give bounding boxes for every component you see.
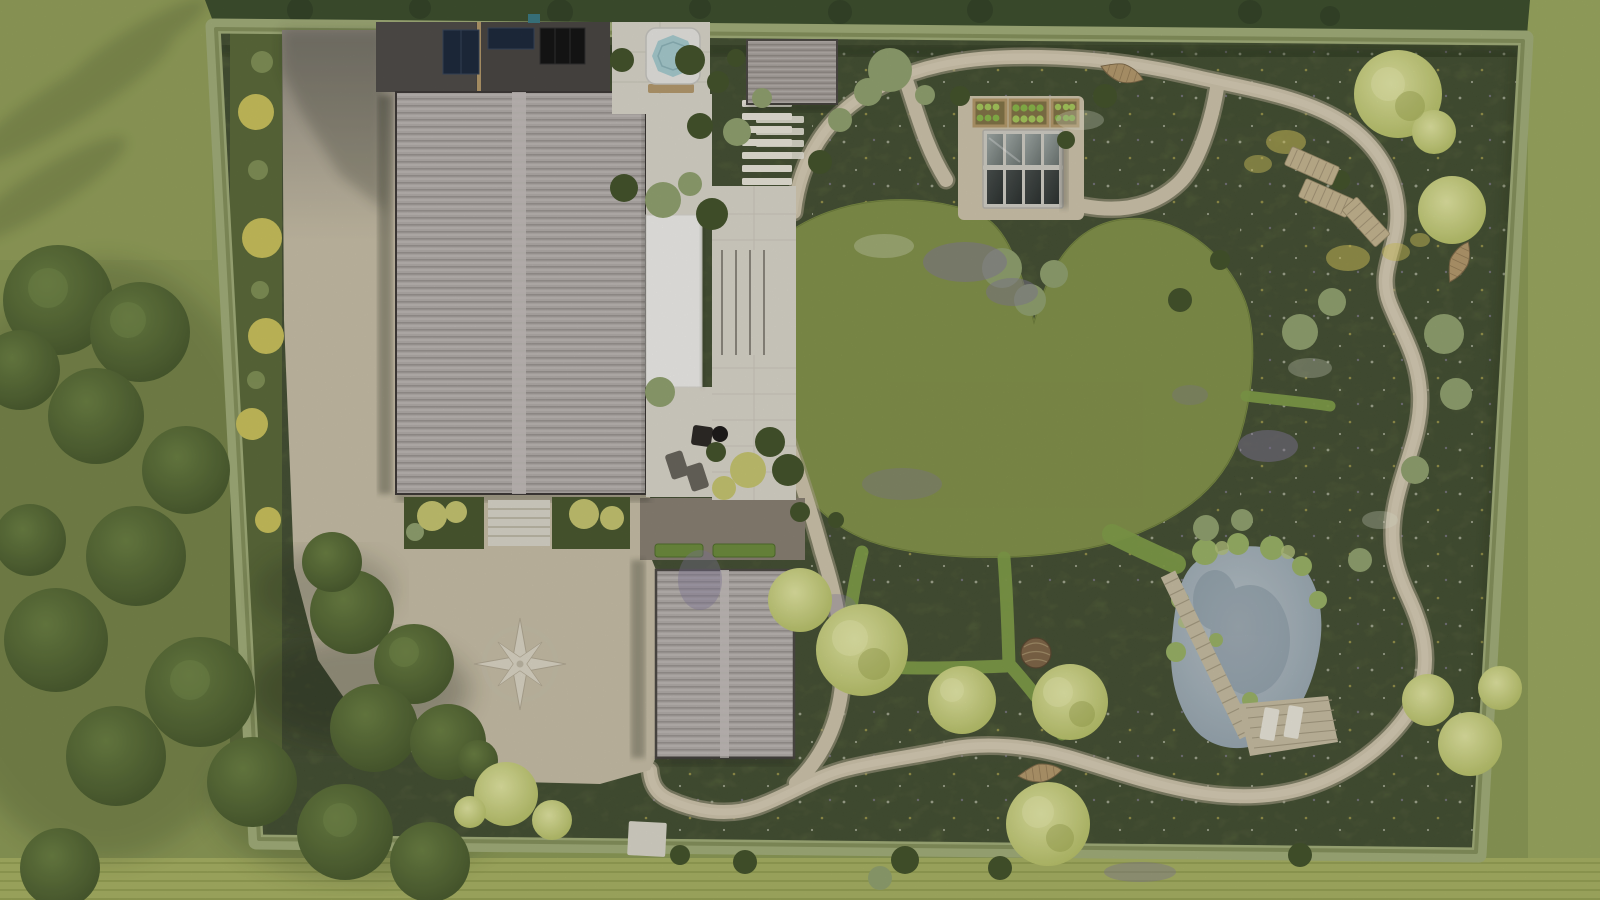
garden-plan-rendering — [0, 0, 1600, 900]
aerial-garden-svg — [0, 0, 1600, 900]
film-grain — [0, 0, 1600, 900]
